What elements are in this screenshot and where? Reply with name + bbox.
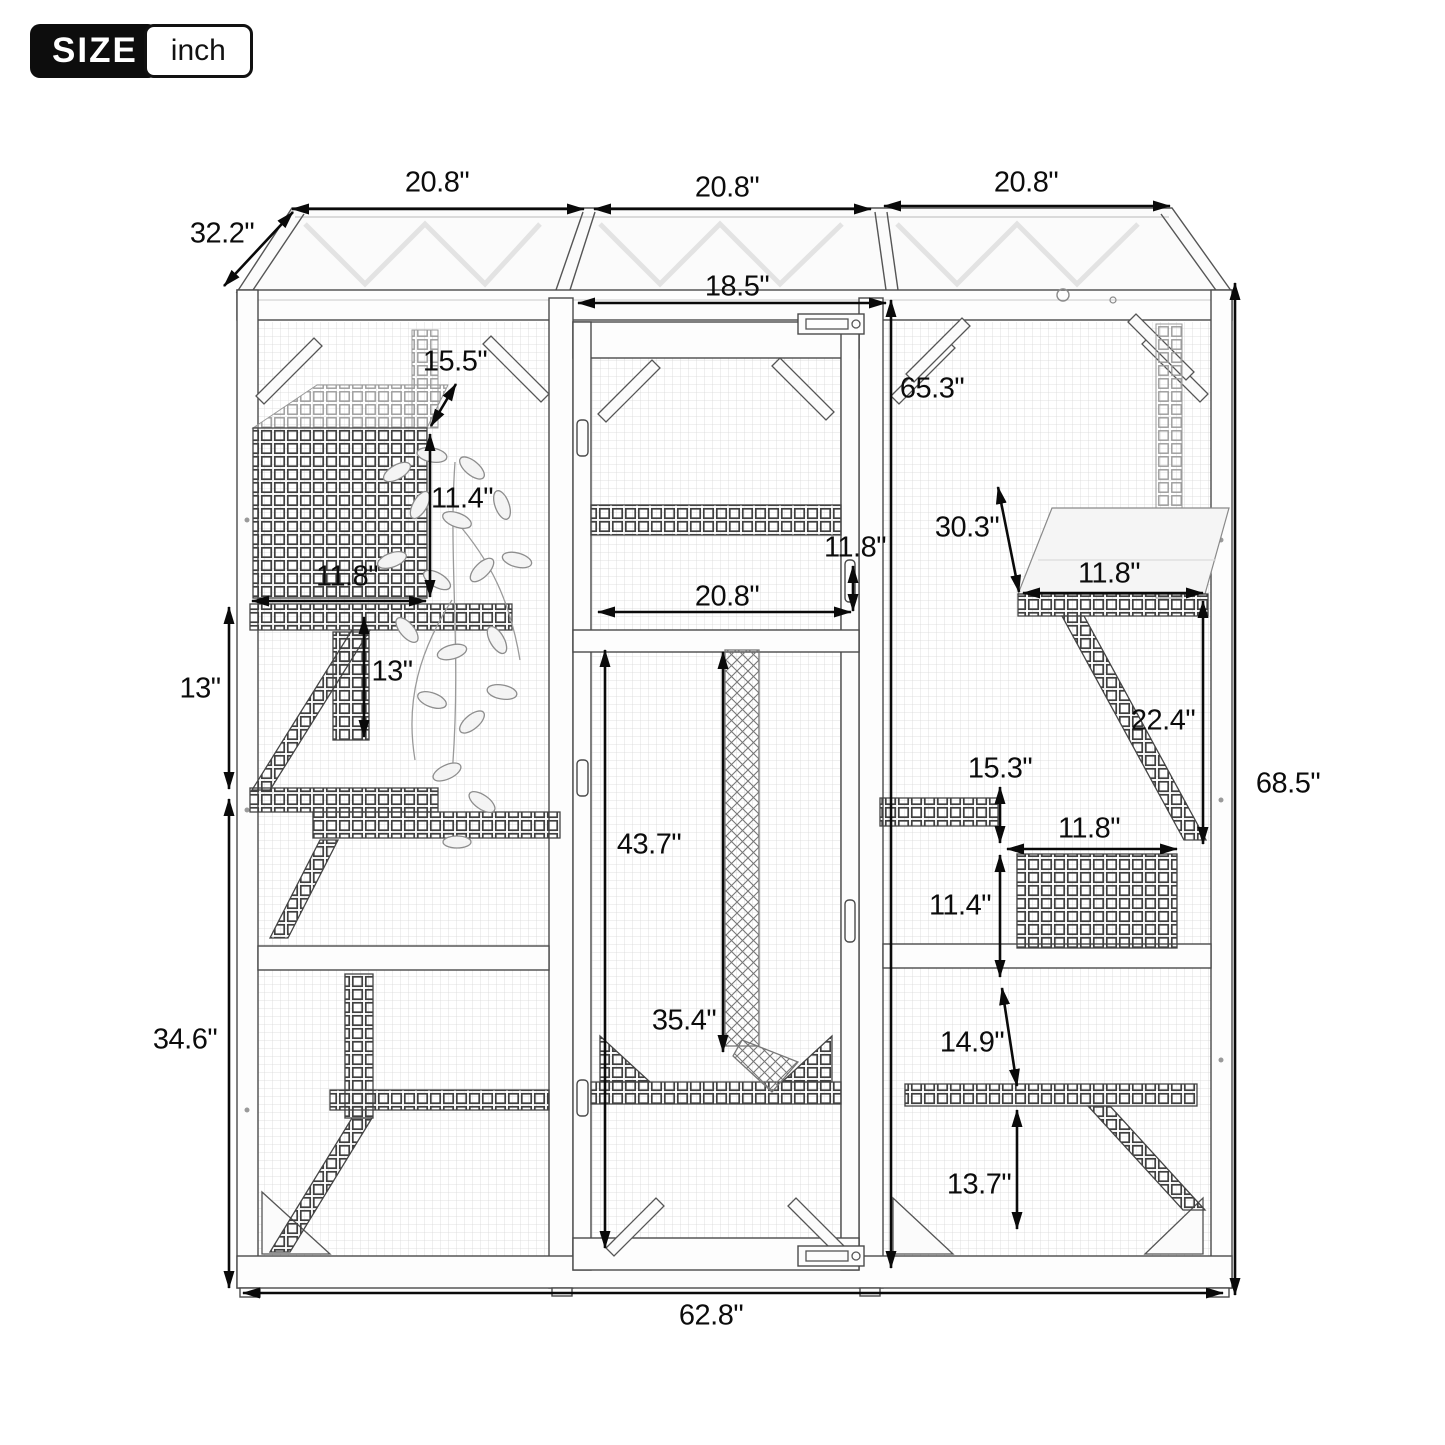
dim-label-top-width-left: 20.8"	[405, 167, 469, 200]
dim-label-rope-length: 35.4"	[652, 1005, 716, 1038]
dim-label-right-box-height: 11.4"	[929, 890, 991, 923]
door-latch-bottom	[798, 1246, 864, 1266]
size-label: SIZE	[30, 24, 158, 78]
right-mesh-box	[1017, 854, 1177, 948]
dim-label-right-shelf-drop: 22.4"	[1131, 705, 1195, 738]
dim-label-door-shelf-gap: 11.8"	[824, 532, 886, 565]
door-hinge	[577, 420, 588, 456]
dim-label-top-width-mid: 20.8"	[695, 172, 759, 205]
dim-label-right-shelf-width: 11.8"	[1078, 558, 1140, 591]
dim-label-total-width: 62.8"	[679, 1300, 743, 1333]
unit-label: inch	[144, 24, 253, 78]
left-shelf-upper	[250, 604, 512, 630]
door-shelf-band	[591, 505, 841, 535]
left-shelf-mid2	[313, 812, 560, 838]
dim-label-door-shelf-width: 20.8"	[695, 581, 759, 614]
door-bottom-band	[591, 1082, 841, 1104]
door-hinge	[577, 760, 588, 796]
dim-label-shelf-diag-right: 30.3"	[935, 512, 999, 545]
dim-label-left-lower-height: 34.6"	[153, 1024, 217, 1057]
size-unit-badge: SIZE inch	[30, 24, 253, 78]
dim-label-door-lower-height: 43.7"	[617, 829, 681, 862]
right-shelf-band	[1018, 594, 1208, 616]
dim-label-left-shelf-width: 11.8"	[316, 561, 378, 594]
dim-label-right-bottom-height: 13.7"	[947, 1169, 1011, 1202]
dim-label-roof-depth: 32.2"	[190, 218, 254, 251]
door-hinge	[577, 1080, 588, 1116]
dim-label-house-height: 11.4"	[431, 483, 493, 516]
dim-label-right-box-gap: 15.3"	[968, 753, 1032, 786]
door-handle	[845, 900, 855, 942]
dim-label-right-box-width: 11.8"	[1058, 813, 1120, 846]
dim-label-right-ramp-drop: 14.9"	[940, 1027, 1004, 1060]
door-right-shelf	[880, 798, 998, 826]
right-lower-band	[905, 1084, 1197, 1106]
dim-label-left-gap-inner: 13"	[371, 656, 412, 689]
dim-label-house-opening: 15.5"	[423, 346, 487, 379]
dim-label-door-width: 18.5"	[705, 271, 769, 304]
dim-label-left-gap-outer: 13"	[179, 673, 220, 706]
dim-label-door-height: 65.3"	[900, 373, 964, 406]
door-latch-top	[798, 314, 864, 334]
catio-dimension-diagram: SIZE inch 20.8" 20.8" 20.8" 32.2" 18.5" …	[0, 0, 1445, 1445]
dim-label-total-height: 68.5"	[1256, 768, 1320, 801]
dim-label-top-width-right: 20.8"	[994, 167, 1058, 200]
left-shelf-mid	[250, 788, 438, 812]
